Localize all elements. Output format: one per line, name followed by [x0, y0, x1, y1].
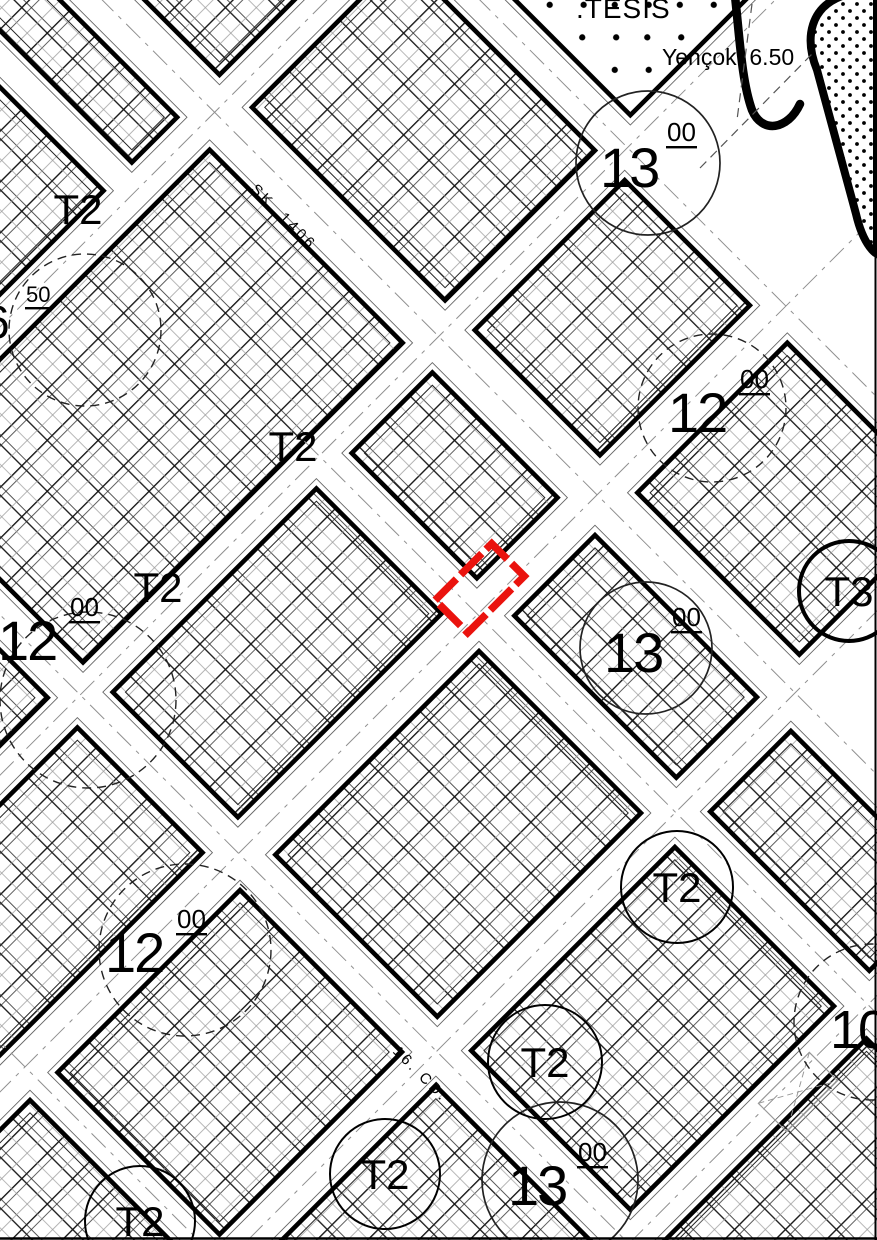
road-width-value: 13: [604, 621, 662, 684]
road-width-decimal: 00: [578, 1137, 607, 1167]
street-name-label: 16. CD.: [389, 1043, 452, 1106]
road-width-decimal: 00: [740, 364, 769, 394]
decimal-underline: [25, 307, 50, 309]
road-width-decimal: 00: [70, 592, 99, 622]
zone-code: T2: [53, 186, 102, 233]
road-width-value: 12: [0, 609, 56, 672]
road-width-decimal: 00: [177, 904, 206, 934]
road-width-decimal: 00: [672, 602, 701, 632]
road-width-decimal: 50: [26, 282, 50, 307]
decimal-underline: [577, 1166, 608, 1168]
zone-code: T2: [360, 1151, 409, 1198]
zone-code: T2: [133, 564, 182, 611]
zone-code: T2: [652, 864, 701, 911]
decimal-underline: [671, 631, 702, 633]
zone-label: T2: [53, 186, 102, 233]
map-viewport[interactable]: 13001200130012001200130065010T2T2T2T2T2T…: [0, 0, 877, 1240]
road-width-value: 10: [830, 1000, 877, 1060]
zoning-plan-map[interactable]: 13001200130012001200130065010T2T2T2T2T2T…: [0, 0, 877, 1240]
road-width-value: 12: [668, 381, 726, 444]
stippled-green-area: [811, 0, 877, 254]
road-width-value: 6: [0, 296, 8, 348]
decimal-underline: [69, 621, 100, 623]
rotated-street-grid: [0, 0, 877, 1240]
road-width-value: 12: [105, 921, 163, 984]
block-hatch-area: [352, 373, 558, 579]
zone-code: T2: [115, 1198, 164, 1240]
zone-code: T2: [268, 423, 317, 470]
zone-code: T3: [824, 568, 873, 615]
decimal-underline: [739, 393, 770, 395]
zone-label: T2: [268, 423, 317, 470]
decimal-underline: [176, 933, 207, 935]
road-width-value: 13: [600, 136, 658, 199]
road-width-decimal: 00: [667, 117, 696, 147]
road-width-value: 13: [508, 1154, 566, 1217]
zone-code: T2: [520, 1039, 569, 1086]
selected-parcel-highlight[interactable]: [435, 544, 524, 633]
zone-label: T2: [133, 564, 182, 611]
facility-area-label: .TESİS: [576, 0, 671, 25]
max-height-label: Yençok: 6.50: [662, 44, 794, 71]
decimal-underline: [666, 146, 697, 148]
